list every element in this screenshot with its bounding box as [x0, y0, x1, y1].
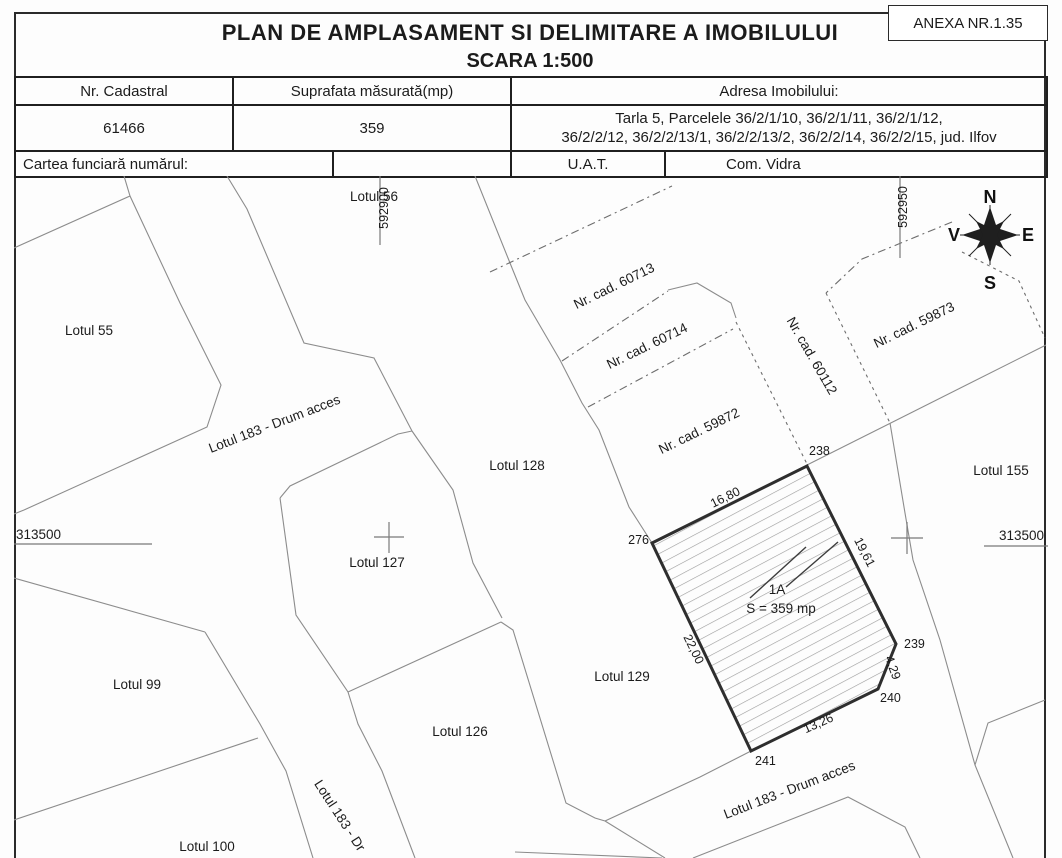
label-road-vertical: Lotul 183 - Dr [311, 777, 368, 854]
vertex-276: 276 [628, 533, 649, 547]
cadastral-map: N E S V 592900 592950 313500 313500 Lotu… [14, 176, 1048, 858]
label-lotul-55: Lotul 55 [65, 323, 113, 338]
vertex-239: 239 [904, 637, 925, 651]
label-lotul-155: Lotul 155 [973, 463, 1029, 478]
value-nr-cadastral: 61466 [14, 104, 234, 152]
value-uat: Com. Vidra [664, 150, 1048, 178]
label-lotul-129: Lotul 129 [594, 669, 650, 684]
label-lotul-128: Lotul 128 [489, 458, 545, 473]
label-lotul-99: Lotul 99 [113, 677, 161, 692]
grid-marks [14, 176, 1048, 554]
label-cartea-funciara: Cartea funciară numărul: [14, 150, 334, 178]
compass-e: E [1022, 225, 1034, 245]
label-lotul-127: Lotul 127 [349, 555, 405, 570]
label-uat: U.A.T. [510, 150, 666, 178]
compass-s: S [984, 273, 996, 293]
label-road-lower: Lotul 183 - Drum acces [722, 758, 858, 822]
label-lotul-100: Lotul 100 [179, 839, 235, 854]
label-nr-cad-60714: Nr. cad. 60714 [604, 320, 690, 372]
compass-rose: N E S V [948, 187, 1034, 293]
label-nr-cad-60713: Nr. cad. 60713 [571, 260, 657, 312]
header-suprafata: Suprafata măsurată(mp) [232, 76, 512, 106]
value-adresa: Tarla 5, Parcelele 36/2/1/10, 36/2/1/11,… [510, 104, 1048, 152]
value-suprafata: 359 [232, 104, 512, 152]
header-adresa: Adresa Imobilului: [510, 76, 1048, 106]
compass-v: V [948, 225, 960, 245]
anexa-label: ANEXA NR.1.35 [913, 15, 1022, 32]
grid-label-592950: 592950 [896, 186, 910, 228]
parcel-area: S = 359 mp [746, 601, 815, 616]
grid-label-313500-right: 313500 [999, 528, 1044, 543]
cell-empty [332, 150, 512, 178]
adresa-line2: 36/2/2/12, 36/2/2/13/1, 36/2/2/13/2, 36/… [561, 128, 996, 147]
label-nr-cad-59872: Nr. cad. 59872 [656, 405, 742, 457]
title-scale: SCARA 1:500 [14, 50, 1046, 73]
dashed-boundaries [490, 186, 1045, 464]
header-nr-cadastral: Nr. Cadastral [14, 76, 234, 106]
anexa-box: ANEXA NR.1.35 [888, 5, 1048, 41]
compass-n: N [984, 187, 997, 207]
label-lotul-56: Lotul 56 [350, 189, 398, 204]
grid-label-313500-left: 313500 [16, 527, 61, 542]
label-nr-cad-59873: Nr. cad. 59873 [871, 299, 957, 351]
label-lotul-126: Lotul 126 [432, 724, 488, 739]
lot-boundaries [14, 176, 1046, 858]
label-nr-cad-60112: Nr. cad. 60112 [784, 314, 840, 397]
label-road-upper: Lotul 183 - Drum acces [207, 392, 343, 456]
vertex-241: 241 [755, 754, 776, 768]
vertex-240: 240 [880, 691, 901, 705]
cadastral-plan-page: ANEXA NR.1.35 PLAN DE AMPLASAMENT SI DEL… [0, 0, 1062, 858]
vertex-238: 238 [809, 444, 830, 458]
parcel-id: 1A [769, 582, 786, 597]
adresa-line1: Tarla 5, Parcelele 36/2/1/10, 36/2/1/11,… [615, 109, 942, 128]
